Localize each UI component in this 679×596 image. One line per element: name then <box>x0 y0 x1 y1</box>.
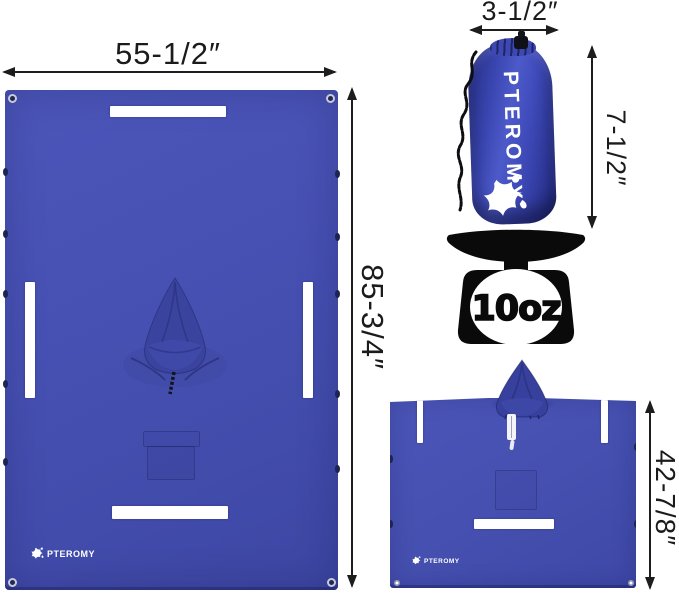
grommet-icon <box>327 578 336 587</box>
tie-loop <box>3 230 8 238</box>
tie-loop <box>634 520 639 528</box>
brand-logo: PTEROMY <box>31 547 95 561</box>
weight-label: 10oz <box>471 289 560 329</box>
tie-loop <box>335 170 340 178</box>
zipper-icon <box>507 414 516 440</box>
brand-logo: PTEROMY <box>412 556 460 566</box>
kitchen-scale-icon: 10oz <box>441 227 591 352</box>
cord-lock-icon <box>514 36 528 49</box>
pouch-height-label: 7-1/2″ <box>601 83 631 213</box>
tie-loop <box>388 455 393 463</box>
tie-loop <box>335 390 340 398</box>
reflective-strip-right <box>303 282 313 398</box>
grommet-icon <box>628 580 634 586</box>
tie-loop <box>3 290 8 298</box>
stuff-sack: PTEROMY <box>470 36 554 228</box>
tie-loop <box>335 290 340 298</box>
star-figure-icon <box>412 556 422 566</box>
pocket <box>147 446 195 480</box>
pouch-width-arrow <box>471 29 557 31</box>
pocket-flap <box>143 431 200 447</box>
tie-loop <box>3 168 8 176</box>
flat-length-arrow <box>351 89 353 586</box>
reflective-strip-left <box>25 282 35 398</box>
tie-loop <box>335 233 340 241</box>
hood-icon <box>484 357 560 419</box>
tie-loop <box>3 458 8 466</box>
grommet-icon <box>326 94 335 103</box>
stuff-sack-gather <box>490 38 536 56</box>
grommet-icon <box>8 578 17 587</box>
brand-name: PTEROMY <box>47 549 95 559</box>
pouch-height-arrow <box>591 47 593 227</box>
reflective-strip-right <box>601 400 608 443</box>
grommet-icon <box>8 94 17 103</box>
tie-loop <box>388 520 393 528</box>
hood-icon <box>115 272 235 396</box>
reflective-strip-top <box>110 106 226 117</box>
pocket <box>495 470 537 510</box>
flat-width-label: 55-1/2″ <box>38 36 298 72</box>
reflective-strip-front <box>474 519 554 529</box>
tie-loop <box>634 443 639 451</box>
flat-width-arrow <box>4 71 335 73</box>
star-figure-icon <box>31 547 45 561</box>
star-figure-icon <box>480 172 535 227</box>
worn-length-label: 42-7/8″ <box>650 428 679 568</box>
reflective-strip-bottom <box>112 506 228 519</box>
pouch-width-label: 3-1/2″ <box>450 0 590 27</box>
reflective-strip-left <box>417 399 423 443</box>
brand-name: PTEROMY <box>424 558 460 565</box>
flat-length-label: 85-3/4″ <box>354 242 390 392</box>
tie-loop <box>3 380 8 388</box>
tie-loop <box>335 465 340 473</box>
product-dimension-image: PTEROMY 55-1/2″ 85-3/4″ 3-1/2″ PTEROMY <box>0 0 679 596</box>
grommet-icon <box>394 580 400 586</box>
